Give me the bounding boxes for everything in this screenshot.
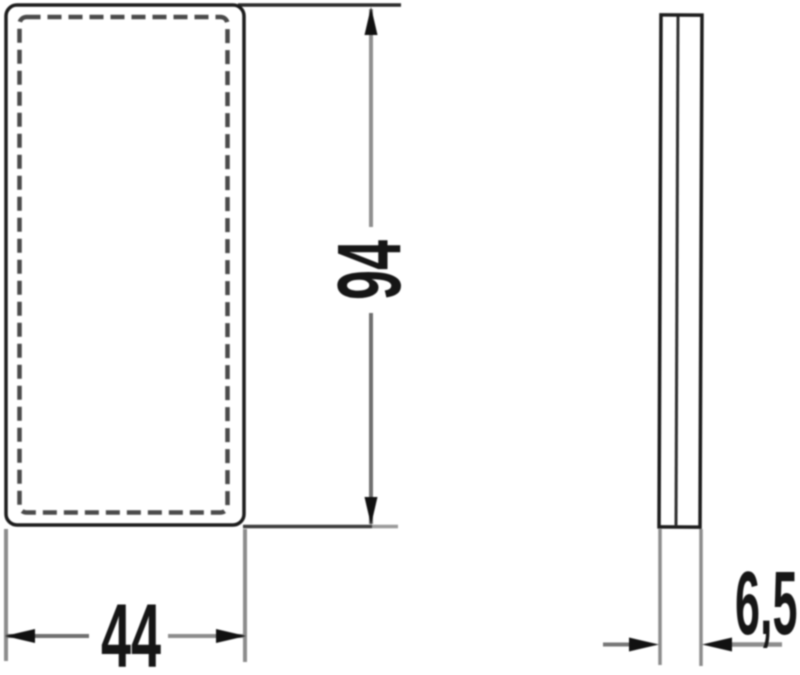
svg-text:94: 94 bbox=[319, 240, 420, 300]
svg-text:44: 44 bbox=[101, 585, 161, 675]
svg-text:6,5: 6,5 bbox=[735, 554, 798, 654]
